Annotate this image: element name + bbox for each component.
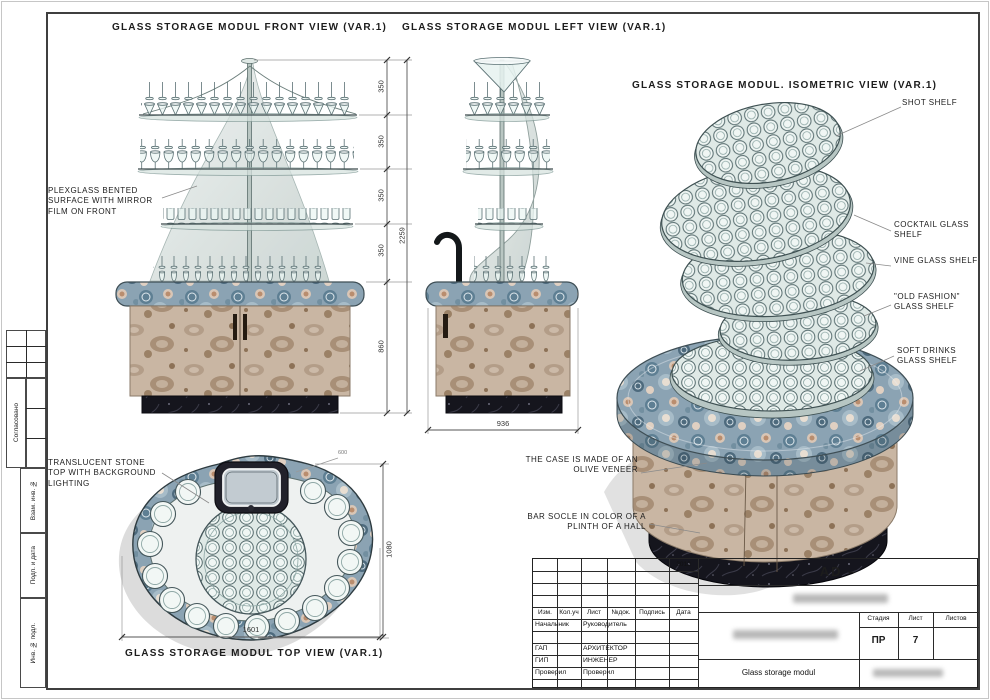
dim-2259: 2259 [398,221,407,251]
stamp-inventory-label: Инв. № подл. [30,623,37,664]
stamp-approved: Согласовано [6,378,26,468]
front-view-title: GLASS STORAGE MODUL FRONT VIEW (VAR.1) [112,22,387,33]
tb-col-izm: Изм. [533,609,557,616]
tb-role-proveril: Проверил [535,669,566,676]
dim-350-4: 350 [377,236,386,266]
tb-sheet-value: 7 [898,635,933,646]
dim-600: 600 [338,450,347,456]
tb-col-data: Дата [669,609,698,616]
dim-350-3: 350 [377,181,386,211]
top-view-sink [215,462,288,513]
stamp-inventory: Инв. № подл. [20,598,46,688]
tb-role-proveril2: Проверил [583,669,614,676]
iso-view-drawing [604,92,913,596]
left-view-title: GLASS STORAGE MODUL LEFT VIEW (VAR.1) [402,22,666,33]
tb-role-gap: ГАП [535,645,548,652]
tb-role-inzhener: ИНЖЕНЕР [583,657,618,664]
stamp-sign-date-label: Подп. и дата [30,546,37,584]
dim-350-2: 350 [377,127,386,157]
note-shot-shelf: SHOT SHELF [902,98,982,108]
note-soft-drinks-shelf: SOFT DRINKS GLASS SHELF [897,346,985,367]
note-bar-socle: BAR SOCLE IN COLOR OF A PLINTH OF A HALL [508,512,646,533]
tb-role-nachalnik: Начальник [535,621,569,628]
drawing-sheet: GLASS STORAGE MODUL FRONT VIEW (VAR.1) G… [0,0,990,700]
title-block: 2012 Изм. Кол.уч Лист №док. Подпись Дата… [532,558,978,688]
front-view-drawing [116,59,364,414]
tb-role-rukovoditel: Руководитель [583,621,627,628]
stamp-replacement: Взам. инв. № [20,468,46,533]
dim-1601: 1601 [226,625,276,634]
top-view-title: GLASS STORAGE MODUL TOP VIEW (VAR.1) [125,648,383,659]
stamp-sign-date: Подп. и дата [20,533,46,598]
stamp-approved-cells [26,378,46,468]
tb-stage-value: ПР [859,635,898,646]
tb-sheets-label: Листов [933,615,979,622]
iso-view-title: GLASS STORAGE MODUL. ISOMETRIC VIEW (VAR… [632,80,937,91]
note-translucent-stone: TRANSLUCENT STONE TOP WITH BACKGROUND LI… [48,458,160,489]
tb-stage-label: Стадия [859,615,898,622]
stamp-approved-label: Согласовано [13,403,20,442]
tb-col-koluch: Кол.уч [557,609,581,616]
tb-col-podpis: Подпись [635,609,669,616]
note-old-fashion-shelf: "OLD FASHION" GLASS SHELF [894,292,986,313]
tb-sheet-label: Лист [898,615,933,622]
left-view-drawing [426,58,578,414]
note-vine-shelf: VINE GLASS SHELF [894,256,982,266]
dim-1080: 1080 [385,535,394,565]
tb-col-list: Лист [581,609,607,616]
note-plexiglass: PLEXGLASS BENTED SURFACE WITH MIRROR FIL… [48,186,160,217]
dim-860: 860 [377,332,386,362]
tb-redacted-project [733,630,838,639]
dim-350-1: 350 [377,72,386,102]
tb-year: 2012 [669,561,698,568]
tb-redacted-company [873,669,943,677]
stamp-replacement-label: Взам. инв. № [30,480,37,520]
note-olive-veneer: THE CASE IS MADE OF AN OLIVE VENEER [512,455,638,476]
tb-role-gip: ГИП [535,657,548,664]
dim-936: 936 [483,419,523,428]
tb-redacted-subtitle [793,594,888,603]
tb-col-ndok: №док. [607,609,635,616]
tb-role-arhitektor: АРХИТЕКТОР [583,645,628,652]
tb-doc-title: Glass storage modul [698,668,859,677]
tb-project-code: AD – [698,564,979,579]
note-cocktail-shelf: COCKTAIL GLASS SHELF [894,220,982,241]
